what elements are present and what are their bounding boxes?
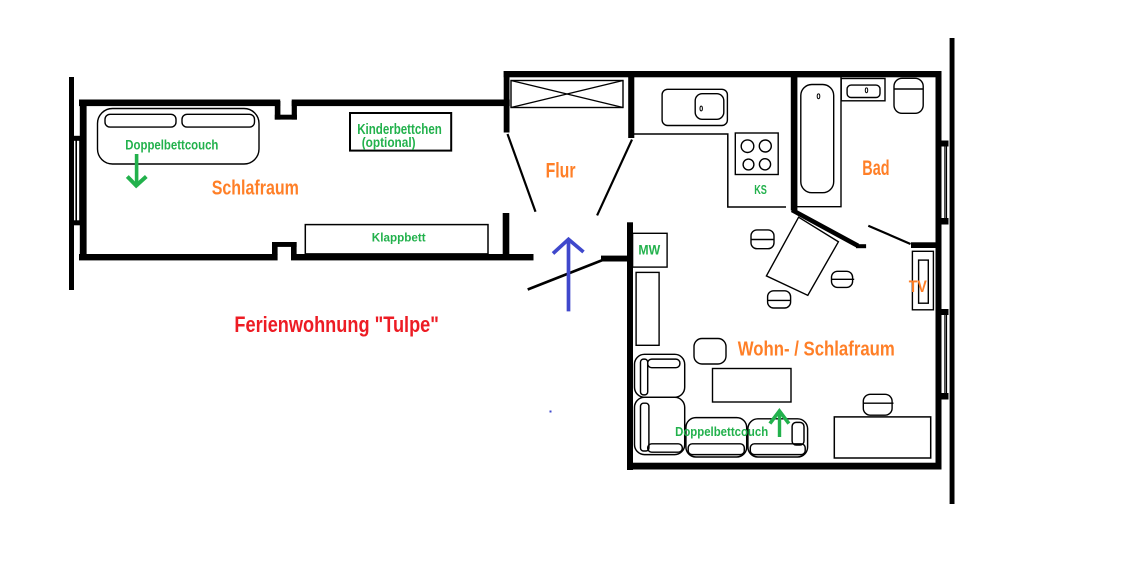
svg-text:Doppelbettcouch: Doppelbettcouch (675, 424, 768, 439)
svg-text:Flur: Flur (546, 160, 576, 183)
svg-text:KS: KS (754, 182, 767, 197)
svg-text:Doppelbettcouch: Doppelbettcouch (125, 136, 218, 152)
svg-text:TV: TV (909, 277, 928, 296)
svg-text:Wohn- / Schlafraum: Wohn- / Schlafraum (738, 337, 895, 360)
svg-text:Klappbett: Klappbett (372, 232, 426, 244)
svg-text:Schlafraum: Schlafraum (212, 178, 299, 200)
svg-text:(optional): (optional) (362, 135, 416, 150)
svg-text:MW: MW (638, 242, 660, 258)
svg-text:Ferienwohnung "Tulpe": Ferienwohnung "Tulpe" (234, 312, 439, 337)
svg-text:Bad: Bad (862, 157, 889, 180)
